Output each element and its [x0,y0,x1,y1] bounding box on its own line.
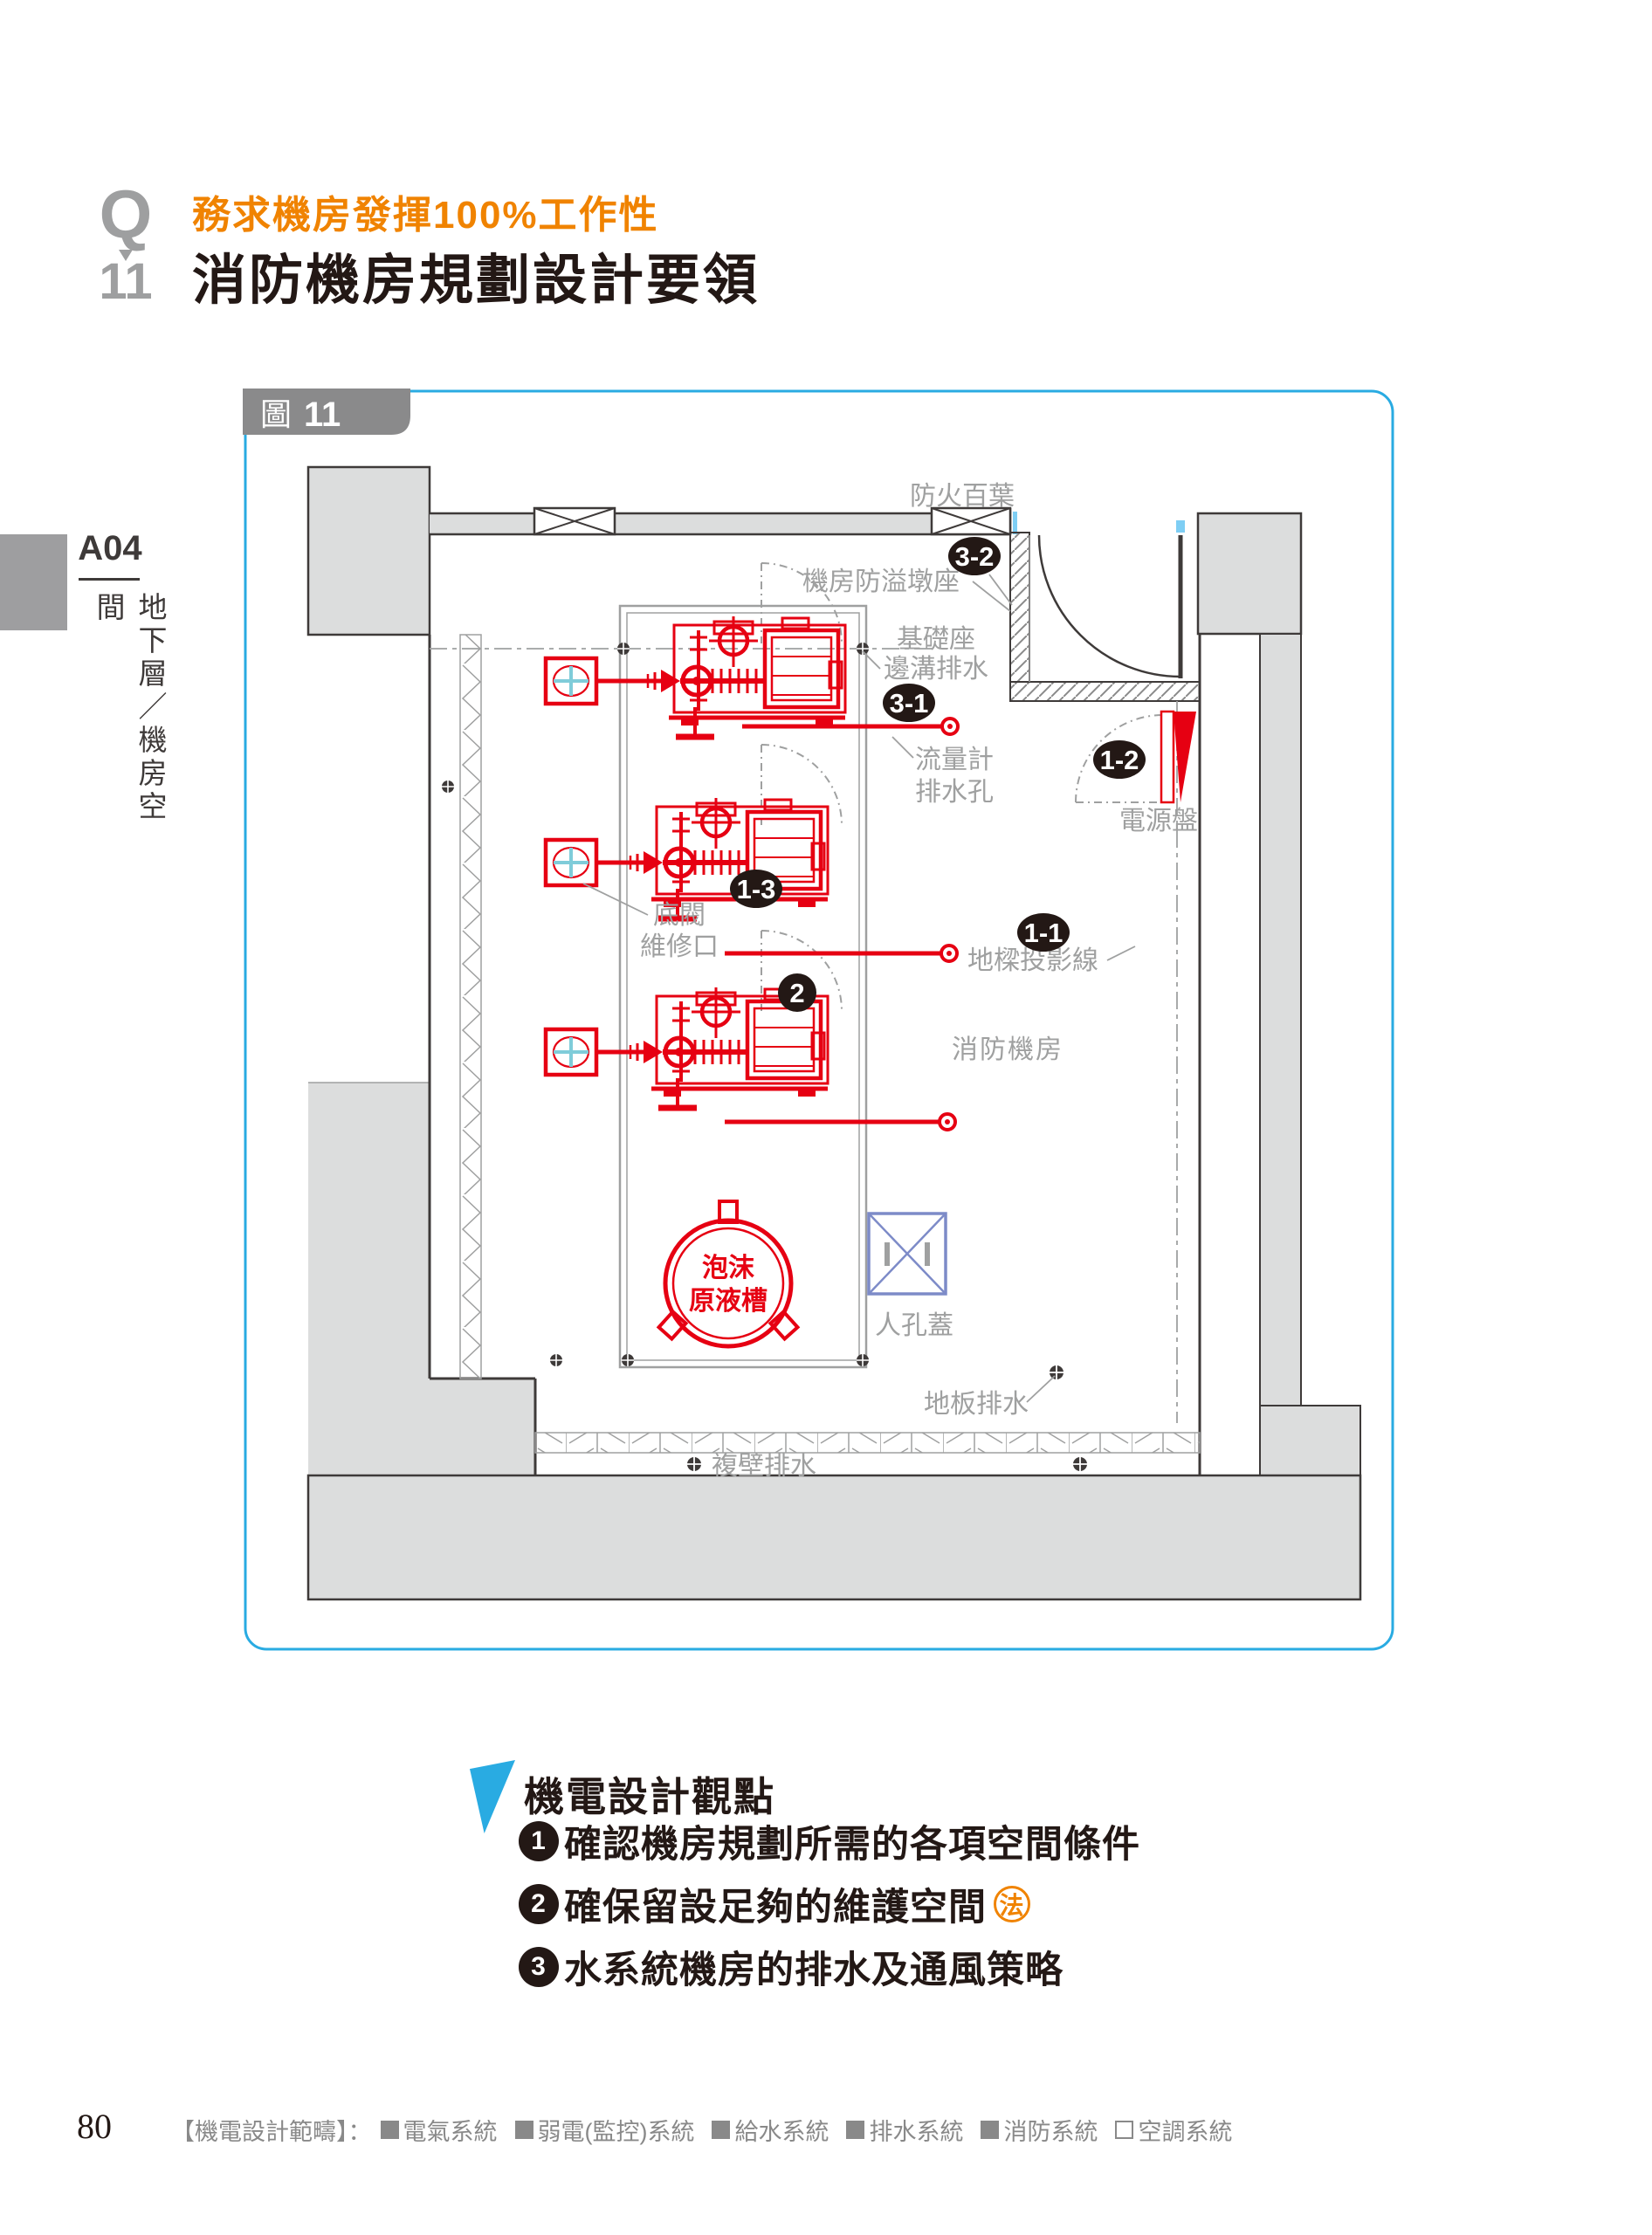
foam-tank-label: 原液槽 [689,1287,767,1316]
filled-square-icon [981,2121,999,2139]
manhole-cover [869,1214,946,1294]
page-number: 80 [77,2106,112,2147]
callout-3-2: 3-2 [948,537,1001,575]
figure-tab-number: 11 [304,395,341,434]
footer-scope-row: 【機電設計範疇】： 電氣系統 弱電(監控)系統 給水系統 排水系統 消防系統 空… [171,2113,1249,2147]
empty-square-icon [1115,2121,1133,2139]
item-number-badge: 2 [519,1884,559,1924]
item-text: 確保留設足夠的維護空間 [564,1877,987,1931]
section-flag-icon [470,1760,515,1833]
label-flow-meter-drain: 排水孔 [915,778,994,807]
label-floor-drain: 地板排水 [924,1390,1029,1419]
sidebar-divider [79,578,140,581]
label-foundation-drain: 邊溝排水 [884,655,988,684]
svg-text:1-1: 1-1 [1024,918,1063,948]
filled-square-icon [846,2121,864,2139]
viewpoint-item: 2 確保留設足夠的維護空間 法 [519,1877,1030,1931]
callout-2: 2 [778,973,816,1012]
sidebar-chapter-code: A04 [75,529,145,568]
svg-text:3-1: 3-1 [890,688,929,719]
entrance-vestibule [1010,520,1200,701]
filled-square-icon [381,2121,399,2139]
centerlines [430,649,1177,1423]
filled-square-icon [712,2121,730,2139]
label-room-name: 消防機房 [952,1035,1063,1064]
callout-1-2: 1-2 [1093,740,1146,779]
item-text: 水系統機房的排水及通風策略 [564,1940,1063,1994]
label-power-panel: 電源盤 [1119,807,1198,836]
label-overflow-curb: 機房防溢墩座 [802,567,960,596]
perimeter-drain-trench [535,1433,1200,1453]
system-tag: 空調系統 [1115,2113,1232,2147]
foam-tank: 泡沫 原液槽 [659,1201,798,1346]
svg-text:3-2: 3-2 [955,541,995,572]
fire-louver-icon [932,508,1017,534]
label-foot-valve-hatch: 維修口 [640,932,719,961]
footer-scope-label: 【機電設計範疇】： [171,2113,372,2147]
label-foundation: 基礎座 [897,625,975,654]
top-wall [430,508,1017,534]
item-text: 確認機房規劃所需的各項空間條件 [564,1814,1140,1868]
discharge-pipes [725,726,942,1122]
label-flow-meter: 流量計 [915,746,994,774]
figure-tab-icon: 圖 [260,396,292,432]
door-swing-arc [1039,535,1180,677]
item-number-badge: 1 [519,1821,559,1861]
sidebar-tab-block [0,534,67,630]
foam-tank-label: 泡沫 [702,1254,754,1283]
page-title: 消防機房規劃設計要領 [192,236,760,314]
label-fire-louver: 防火百葉 [910,482,1015,511]
viewpoint-item: 1 確認機房規劃所需的各項空間條件 [519,1814,1140,1868]
svg-text:2: 2 [789,978,804,1008]
book-page: { "header": { "q_mark": "Q", "q_number":… [0,0,1652,2235]
item-number-badge: 3 [519,1947,559,1987]
label-manhole: 人孔蓋 [875,1311,953,1340]
system-tag: 給水系統 [712,2113,829,2147]
label-foot-valve: 底閥 [653,901,706,930]
system-tag: 排水系統 [846,2113,963,2147]
law-mark-icon: 法 [994,1886,1030,1922]
double-wall-cavity [460,635,481,1379]
svg-text:1-3: 1-3 [737,874,776,904]
system-tag: 弱電(監控)系統 [515,2113,695,2147]
svg-text:1-2: 1-2 [1100,745,1139,775]
label-wall-drain: 複壁排水 [712,1452,816,1481]
filled-square-icon [515,2121,533,2139]
figure-11-floor-plan: 圖 11 [243,389,1396,1652]
page-subtitle: 務求機房發揮100%工作性 [192,183,659,239]
label-beam-projection: 地樑投影線 [967,946,1098,975]
sidebar-section-title: 地下層／機房空間 [87,592,171,854]
system-tag: 電氣系統 [381,2113,498,2147]
callout-1-1: 1-1 [1017,913,1070,952]
system-tag: 消防系統 [981,2113,1098,2147]
callout-badges: 3-2 3-1 1-2 1-3 1-1 2 [730,537,1146,1012]
fire-louver-icon [534,508,615,534]
callout-1-3: 1-3 [730,870,782,908]
question-number: 11 [91,257,161,307]
callout-3-1: 3-1 [883,684,935,722]
question-mark: Q [91,180,161,248]
power-panel [1161,712,1196,802]
viewpoint-item: 3 水系統機房的排水及通風策略 [519,1940,1063,1994]
